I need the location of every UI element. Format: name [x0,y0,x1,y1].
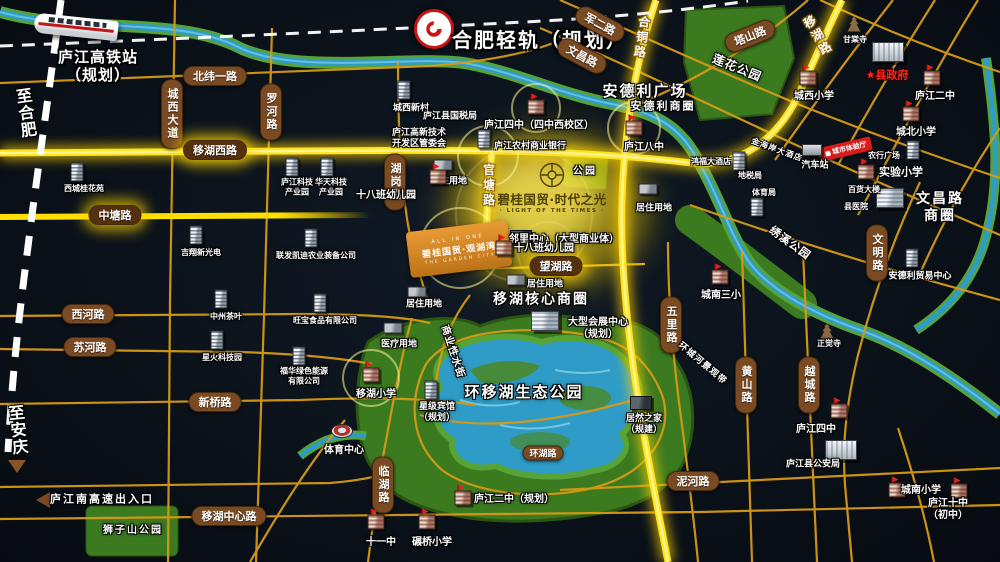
poi-label: 庐江四中 [796,424,836,436]
brand-logo-icon [825,150,831,156]
complex-icon [531,311,559,331]
poi-label: 庐江四中（四中西校区） [484,120,594,132]
district-label: 狮子山公园 [103,525,163,537]
poi-label: 体育局 [752,188,776,198]
tower-icon [733,152,746,171]
project-emblem-icon [539,162,565,188]
dark-icon [630,396,652,410]
poi-label: 庐江县公安局 [786,460,840,471]
tower-icon [190,226,203,245]
poi-label: 城北小学 [896,127,936,139]
poi-label: 十八班幼儿园 [356,190,416,202]
road-pill: 移湖西路 [183,140,247,160]
gov-icon [872,42,904,62]
road-pill: 文明路 [866,225,888,282]
poi-label: 安德利贸易中心 [888,272,951,283]
poi-label: 碾桥小学 [412,537,452,549]
school-icon [903,107,920,122]
school-icon [455,491,472,506]
road-label-glow: 官塘路 [481,164,498,209]
poi-label: 庐江高新技术 开发区管委会 [392,128,446,150]
poi-label: 十八班幼儿园 [514,243,574,255]
poi-label: 庐江科技 产业园 [281,177,313,196]
map-text: 商业性水街 [438,324,466,380]
metro-logo-icon [414,9,454,49]
poi-label: 福华绿色能源 有限公司 [280,366,328,385]
school-icon [951,484,968,499]
poi-label: 居住用地 [406,300,442,311]
pagoda-icon [821,324,834,339]
poi-label: 城南小学 [901,485,941,497]
poi-label: 联发凯迪农业装备公司 [276,251,356,261]
poi-label: 十一中 [366,537,396,549]
poi-label: 百货大楼 [848,185,880,195]
pagoda-icon [848,17,861,32]
tower-icon [425,381,438,400]
road-pill: 中塘路 [89,205,142,225]
road-pill: 越城路 [798,357,820,414]
tower-icon [305,229,318,248]
project-name: 碧桂国贸·时代之光 [496,189,608,208]
poi-label: 旺宝食品有限公司 [293,316,357,326]
poi-label: 吉翔新光电 [181,248,221,258]
map-text: 至安庆 [5,404,29,457]
tower-icon [907,141,920,160]
road-pill: 移湖中心路 [192,506,267,526]
highway-exit-arrow-icon [36,492,50,508]
map-text: 金海岸大酒店 [750,136,804,163]
road-pill: 苏河路 [64,337,117,357]
district-label: 安德利商圈 [631,99,696,112]
poi-label: 庐江二中（规划） [474,494,554,506]
map-text: 环城河景观带 [676,341,729,388]
road-label-glow: 合铜路 [630,15,653,62]
flat-icon [408,287,427,298]
poi-label: 庐江二中 [915,91,955,103]
poi-label: 庐江八中 [624,142,664,154]
poi-label: 庐江十中（初中） [922,498,974,522]
school-icon [924,71,941,86]
school-icon [363,368,380,383]
complex-icon [876,188,904,208]
map-text: 绣溪公园 [767,224,814,263]
road-pill: 塔山路 [722,17,779,55]
tower-icon [478,130,491,149]
district-label: 文昌路商圈 [910,191,970,225]
district-label: 安德利广场 [602,82,687,100]
hsr-train-icon [32,3,122,54]
banner-label: 城市体验厅 [831,139,867,157]
poi-label: 居住用地 [636,204,672,215]
poi-label: 正觉寺 [817,339,841,349]
poi-label: 城南三小 [701,290,741,302]
district-label: 环移湖生态公园 [464,383,583,401]
tower-icon [293,347,306,366]
road-pill: 城西大道 [161,79,183,149]
poi-label: 医疗用地 [381,340,417,351]
flat-icon [384,323,403,334]
poi-label: ★县政府 [866,68,909,81]
tower-icon [71,163,84,182]
road-label-glow: 移湖路 [799,12,836,59]
poi-label: 移湖小学 [356,389,396,401]
project-subtitle: · LIGHT OF THE TIMES · [496,208,608,214]
school-icon [419,515,436,530]
flat-icon [639,184,658,195]
poi-label: 居住用地 [527,280,563,291]
poi-label: 庐江农村商业银行 [494,142,566,153]
tower-icon [211,331,224,350]
school-icon [528,100,545,115]
poi-label: 居然之家 （规建） [626,414,662,436]
district-label: 移湖核心商圈 [493,292,589,309]
road-pill: 环湖路 [522,446,563,461]
tower-icon [751,198,764,217]
road-pill: 西河路 [62,304,115,324]
school-icon [831,404,848,419]
poi-label: 体育中心 [324,445,364,457]
district-label: 公园 [573,166,597,178]
tower-icon [321,158,334,177]
gov-icon [825,440,857,460]
poi-label: 县医院 [844,202,868,212]
tower-icon [398,81,411,100]
district-label: 庐江南高速出入口 [50,492,154,505]
stadium-icon [331,424,353,438]
school-icon [626,121,643,136]
flat-icon [507,275,526,286]
road-pill: 新桥路 [189,392,242,412]
tower-icon [314,294,327,313]
hsr-station-label: 庐江高铁站 （规划） [58,48,138,84]
road-pill: 泥河路 [667,471,720,491]
poi-label: 实验小学 [879,165,923,178]
poi-label: 西城桂花苑 [64,184,104,194]
tower-icon [286,158,299,177]
school-icon [430,170,447,185]
tower-icon [906,249,919,268]
poi-label: 庐江县国税局 [423,112,477,123]
school-icon [712,270,729,285]
map-text: 至合肥 [12,86,38,139]
poi-label: 大型会展中心 （规划） [568,317,628,341]
to-anqing-arrow-icon [8,460,26,473]
road-pill: 罗河路 [260,84,282,141]
poi-label: 星级宾馆 （规划） [419,402,455,424]
poi-label: 甘棠寺 [843,35,867,45]
school-icon [800,71,817,86]
poi-label: 星火科技园 [202,353,242,363]
poi-label: 地税局 [738,171,762,181]
road-pill: 北纬一路 [183,66,247,86]
school-icon [496,241,513,256]
poi-label: 农行广场 [868,151,900,161]
poi-label: 鸿福大酒店 [691,157,731,167]
school-icon [858,165,875,180]
poi-label: 华天科技 产业园 [315,177,347,196]
map-text: 莲花公园 [710,52,764,85]
poi-label: 中州茶叶 [210,312,242,322]
road-pill: 黄山路 [735,357,757,414]
tower-icon [215,290,228,309]
road-pill: 临湖路 [372,457,394,514]
road-pill: 望湖路 [530,256,583,276]
location-map: 庐江高铁站 （规划） 合肥轻轨（规划） 碧桂国贸·时代之光 · LIGHT OF… [0,0,1000,562]
school-icon [368,515,385,530]
station-icon [802,144,822,156]
poi-label: 城西小学 [794,91,834,103]
poi-label: 汽车站 [801,161,828,172]
